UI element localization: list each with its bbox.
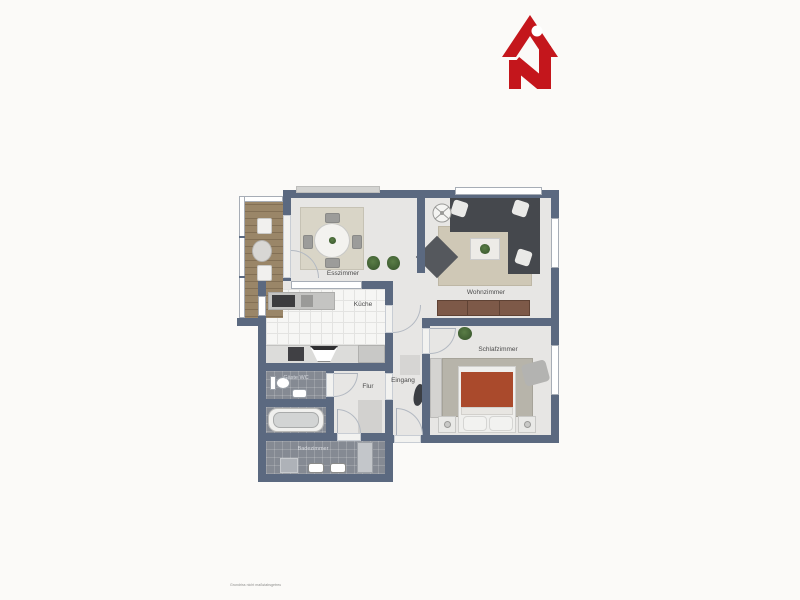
wall: [430, 318, 559, 326]
room-label-schlafzimmer: Schlafzimmer: [468, 346, 528, 354]
cooktop: [272, 295, 295, 307]
bath-cabinet: [357, 442, 373, 473]
bed-sheet-fold: [461, 407, 513, 415]
window: [551, 218, 559, 268]
door-leaf: [337, 409, 338, 433]
balcony-chair: [257, 218, 272, 234]
wall: [258, 433, 393, 441]
window-post: [239, 276, 245, 278]
floor-plan: Esszimmer Küche Wohnzimmer Schlafzimmer …: [237, 188, 559, 482]
coffee-table-plant-icon: [480, 244, 490, 254]
window-post: [239, 236, 245, 238]
dining-chair: [325, 258, 340, 268]
room-label-badezimmer: Badezimmer: [283, 445, 343, 453]
wall: [258, 474, 393, 482]
ceiling-fan-icon: [432, 203, 452, 223]
window-sill: [296, 186, 380, 193]
pillow: [463, 416, 487, 431]
entrance-door-leaf: [396, 408, 397, 435]
wall: [385, 441, 393, 474]
room-label-kueche: Küche: [333, 301, 393, 309]
table-plant-icon: [329, 237, 336, 244]
flur-mat: [358, 400, 382, 433]
window: [551, 345, 559, 395]
door-opening: [283, 215, 291, 278]
washbasin: [330, 463, 346, 473]
dining-chair: [325, 213, 340, 223]
balcony-table: [252, 240, 272, 262]
entrance-door-opening: [394, 435, 421, 443]
window: [258, 296, 266, 316]
door-opening: [385, 305, 393, 333]
wall: [258, 399, 334, 407]
lamp-icon: [444, 421, 451, 428]
balcony-window-top: [239, 196, 283, 202]
floor-plan-page: Esszimmer Küche Wohnzimmer Schlafzimmer …: [0, 0, 800, 600]
sink-rim: [310, 346, 338, 350]
shower-unit: [280, 458, 298, 473]
bathtub-basin: [273, 412, 319, 428]
lamp-icon: [524, 421, 531, 428]
balcony-chair: [257, 265, 272, 281]
sideboard-divider: [499, 301, 500, 315]
window: [455, 187, 542, 195]
fine-print-watermark: Grundriss nicht maßstabsgetreu: [230, 583, 281, 587]
sideboard: [437, 300, 530, 316]
stove: [288, 347, 304, 361]
room-label-gaeste-wc: Gäste WC: [266, 374, 326, 382]
pillow: [489, 416, 513, 431]
plant-icon: [367, 256, 380, 270]
door-leaf: [334, 373, 358, 374]
pass-through-counter: [291, 281, 362, 289]
kitchen-appliance: [301, 295, 313, 307]
room-label-esszimmer: Esszimmer: [313, 270, 373, 278]
door-opening: [422, 328, 430, 354]
wardrobe: [430, 358, 442, 418]
sideboard-divider: [467, 301, 468, 315]
balcony-window-left: [239, 196, 245, 318]
room-label-wohnzimmer: Wohnzimmer: [456, 289, 516, 297]
washbasin: [308, 463, 324, 473]
door-opening: [337, 433, 361, 441]
dining-chair: [352, 235, 362, 249]
room-label-eingang: Eingang: [373, 377, 433, 385]
kitchen-cabinet: [358, 345, 385, 363]
bed-duvet: [461, 372, 513, 410]
door-leaf: [430, 328, 456, 329]
hall-mat: [400, 355, 420, 375]
wall: [417, 198, 425, 273]
logo-dot: [532, 26, 543, 37]
dining-chair: [303, 235, 313, 249]
door-opening: [326, 373, 334, 397]
plant-icon: [458, 327, 472, 340]
plant-icon: [387, 256, 400, 270]
wall: [237, 318, 266, 326]
wc-washbasin: [292, 389, 307, 398]
house-n-logo-icon: [500, 13, 560, 89]
